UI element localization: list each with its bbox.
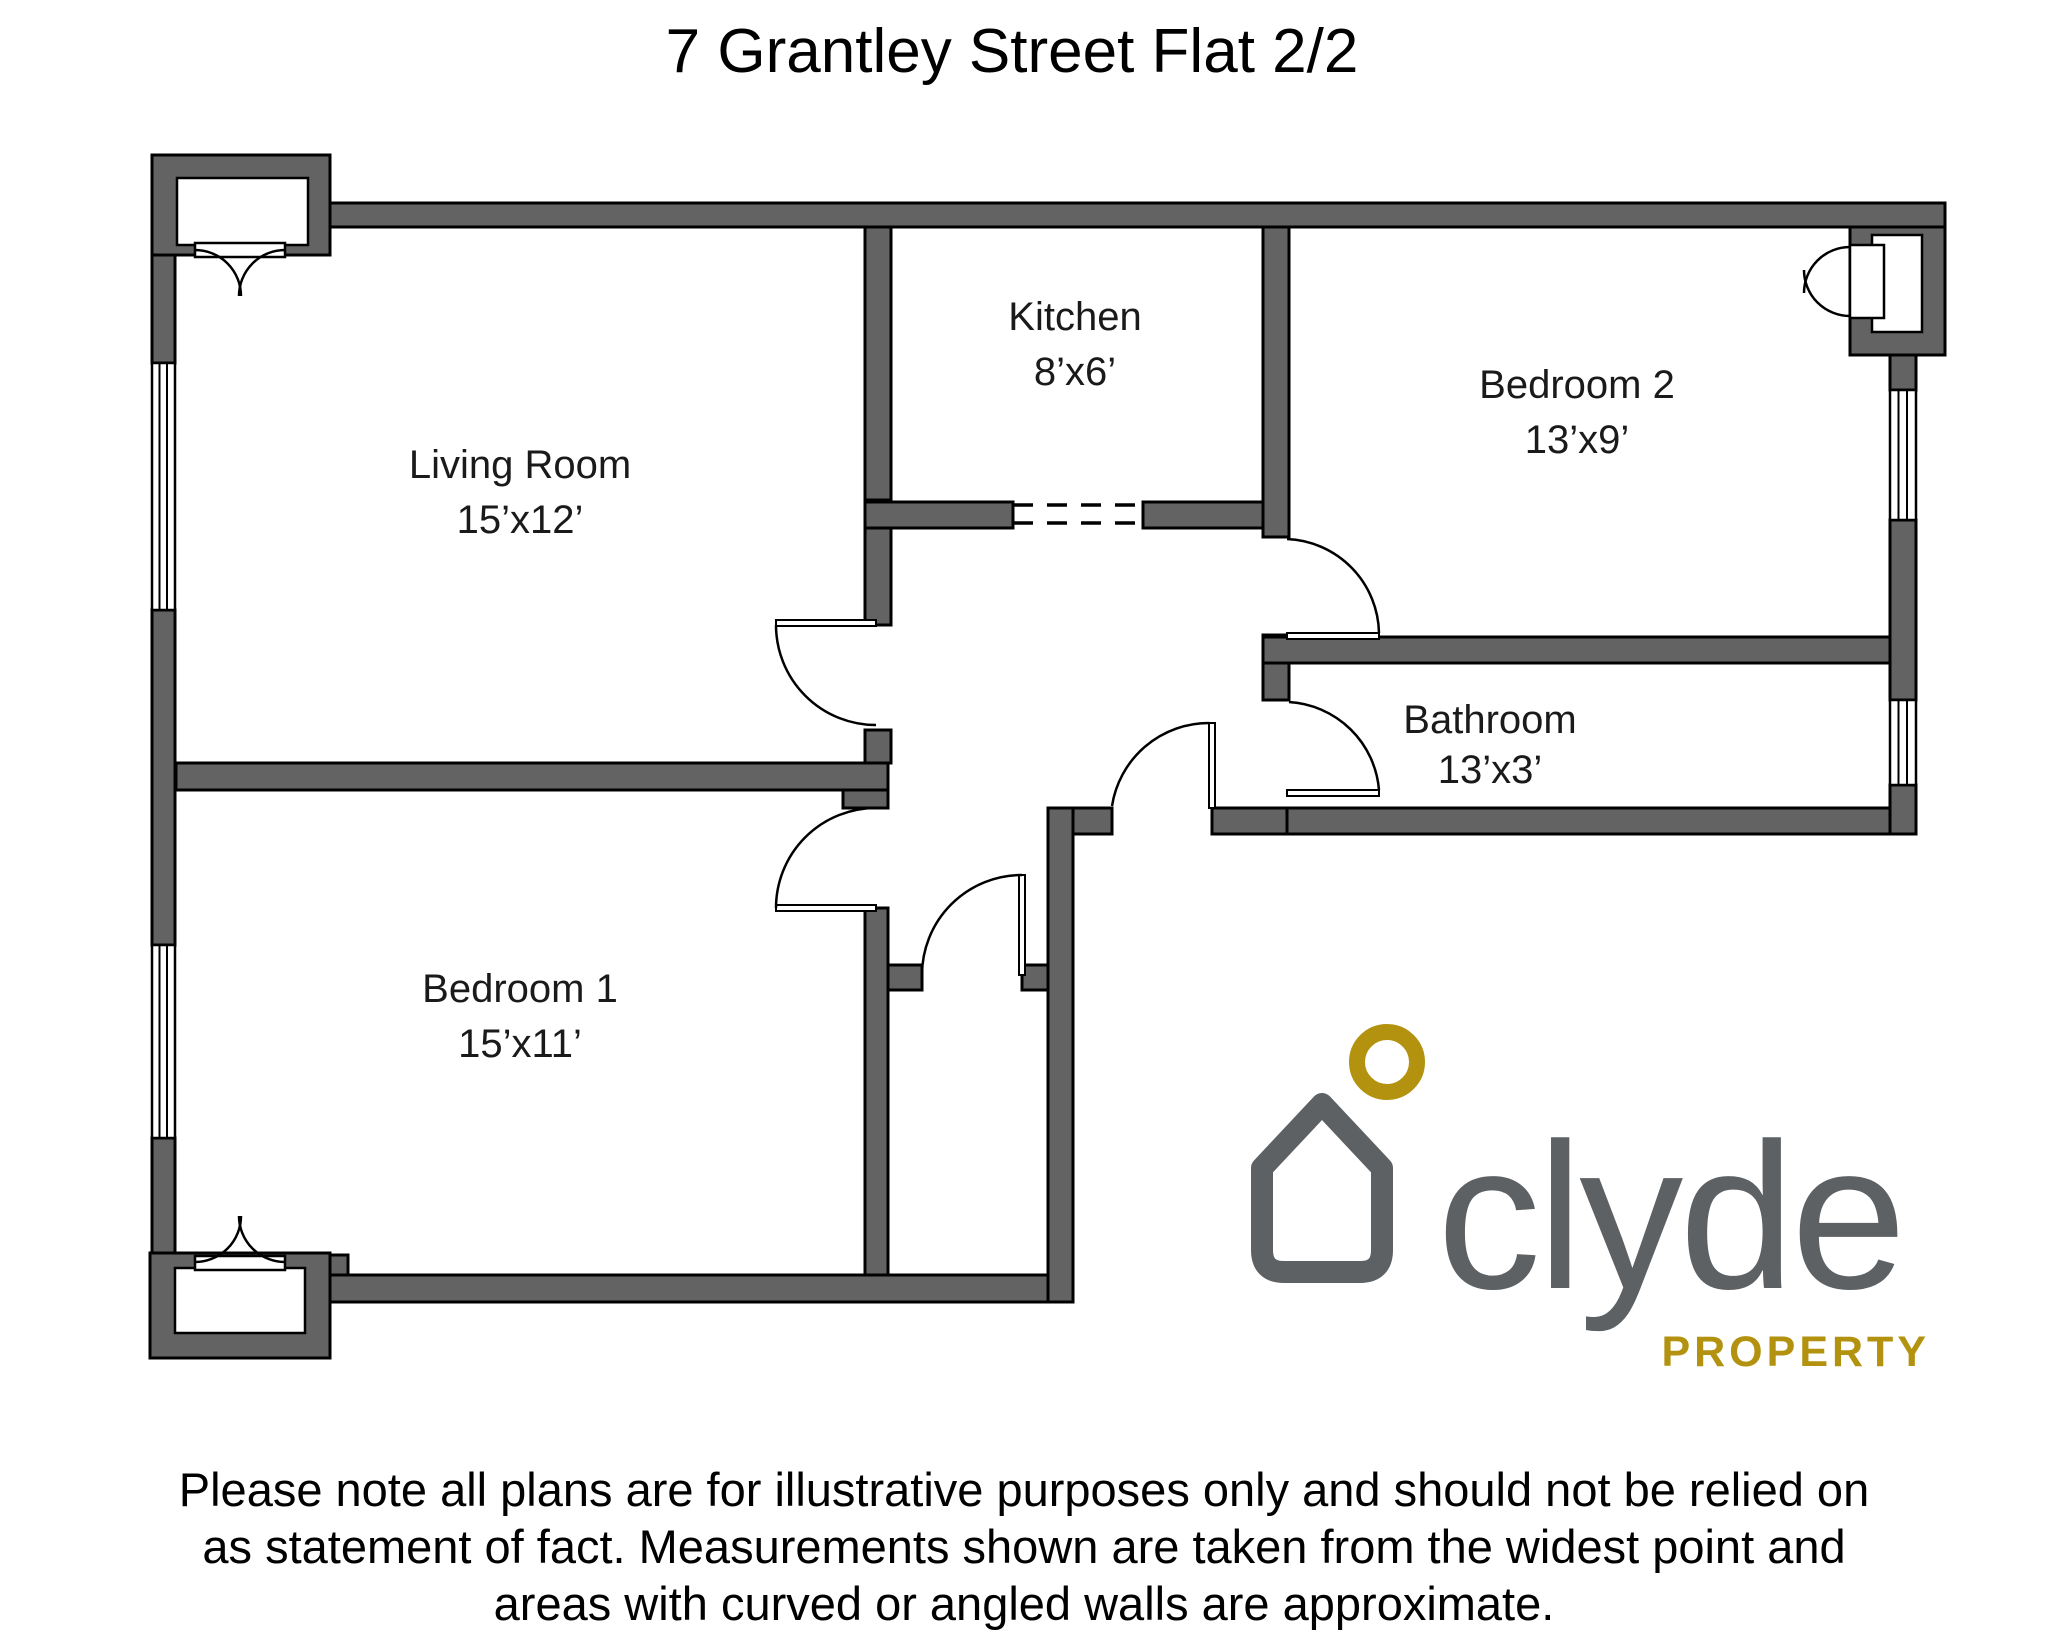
wall-divider-jamb bbox=[843, 790, 888, 808]
window-bedroom2 bbox=[1890, 390, 1916, 520]
floor-plan-page: 7 Grantley Street Flat 2/2 bbox=[0, 0, 2048, 1652]
wall-south-b bbox=[1212, 808, 1287, 834]
disclaimer-line-1: Please note all plans are for illustrati… bbox=[179, 1463, 1869, 1516]
recess-top-left bbox=[177, 178, 308, 245]
bedroom2-name: Bedroom 2 bbox=[1479, 363, 1675, 407]
wall-south-a bbox=[1073, 808, 1112, 834]
brand-name: clyde bbox=[1437, 1101, 1903, 1333]
page-title: 7 Grantley Street Flat 2/2 bbox=[666, 17, 1359, 86]
wall-hall-west bbox=[865, 908, 888, 1275]
recess-gap-top-left bbox=[195, 243, 285, 257]
bathroom-dims: 13’x3’ bbox=[1438, 748, 1543, 792]
wall-left-b bbox=[152, 610, 175, 945]
wall-divider bbox=[176, 763, 888, 790]
wall-left-c bbox=[152, 1138, 175, 1253]
wall-top bbox=[330, 203, 1945, 227]
bedroom1-name: Bedroom 1 bbox=[422, 967, 618, 1011]
wall-right-c bbox=[1890, 785, 1916, 834]
wall-livingroom-kitchen bbox=[865, 227, 891, 500]
kitchen-name: Kitchen bbox=[1008, 295, 1141, 339]
wall-livingroom-stub bbox=[865, 730, 891, 763]
wall-closet-east bbox=[1048, 808, 1073, 1302]
recess-gap-bottom-left bbox=[195, 1256, 285, 1270]
wall-bedroom2-bathroom bbox=[1263, 637, 1890, 663]
wall-closet-top-left bbox=[888, 965, 922, 990]
bedroom2-dims: 13’x9’ bbox=[1525, 418, 1630, 462]
window-bathroom bbox=[1890, 700, 1916, 785]
floor-plan-canvas: 7 Grantley Street Flat 2/2 bbox=[0, 0, 2048, 1652]
disclaimer-line-2: as statement of fact. Measurements shown… bbox=[202, 1520, 1845, 1573]
disclaimer-line-3: areas with curved or angled walls are ap… bbox=[494, 1577, 1555, 1630]
wall-right-b bbox=[1890, 520, 1916, 700]
window-livingroom bbox=[152, 363, 175, 610]
wall-kitchen-bottom-left bbox=[865, 502, 1013, 528]
recess-bottom-left bbox=[175, 1268, 305, 1333]
brand-tagline: PROPERTY bbox=[1661, 1328, 1930, 1376]
kitchen-dims: 8’x6’ bbox=[1034, 350, 1116, 394]
wall-bedroom2-west bbox=[1263, 227, 1289, 537]
wall-right-a bbox=[1890, 355, 1916, 390]
bathroom-name: Bathroom bbox=[1403, 698, 1576, 742]
wall-bottom-bedroom1 bbox=[330, 1275, 1073, 1302]
wall-livingroom-east bbox=[865, 528, 891, 625]
living-room-dims: 15’x12’ bbox=[457, 498, 584, 542]
living-room-name: Living Room bbox=[409, 443, 631, 487]
wall-left-a bbox=[152, 255, 175, 363]
wall-bottom-bathroom bbox=[1287, 808, 1916, 834]
bedroom1-dims: 15’x11’ bbox=[458, 1022, 582, 1066]
recess-gap-top-right bbox=[1850, 245, 1884, 318]
window-bedroom1 bbox=[152, 945, 175, 1138]
